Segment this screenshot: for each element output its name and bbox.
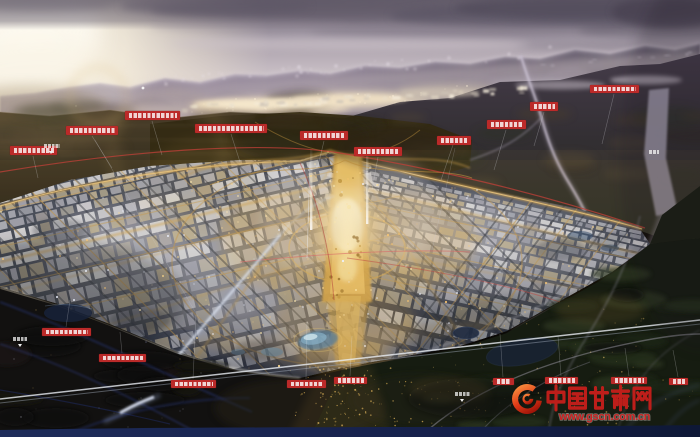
svg-text:www.gscn.com.cn: www.gscn.com.cn [558,411,651,423]
